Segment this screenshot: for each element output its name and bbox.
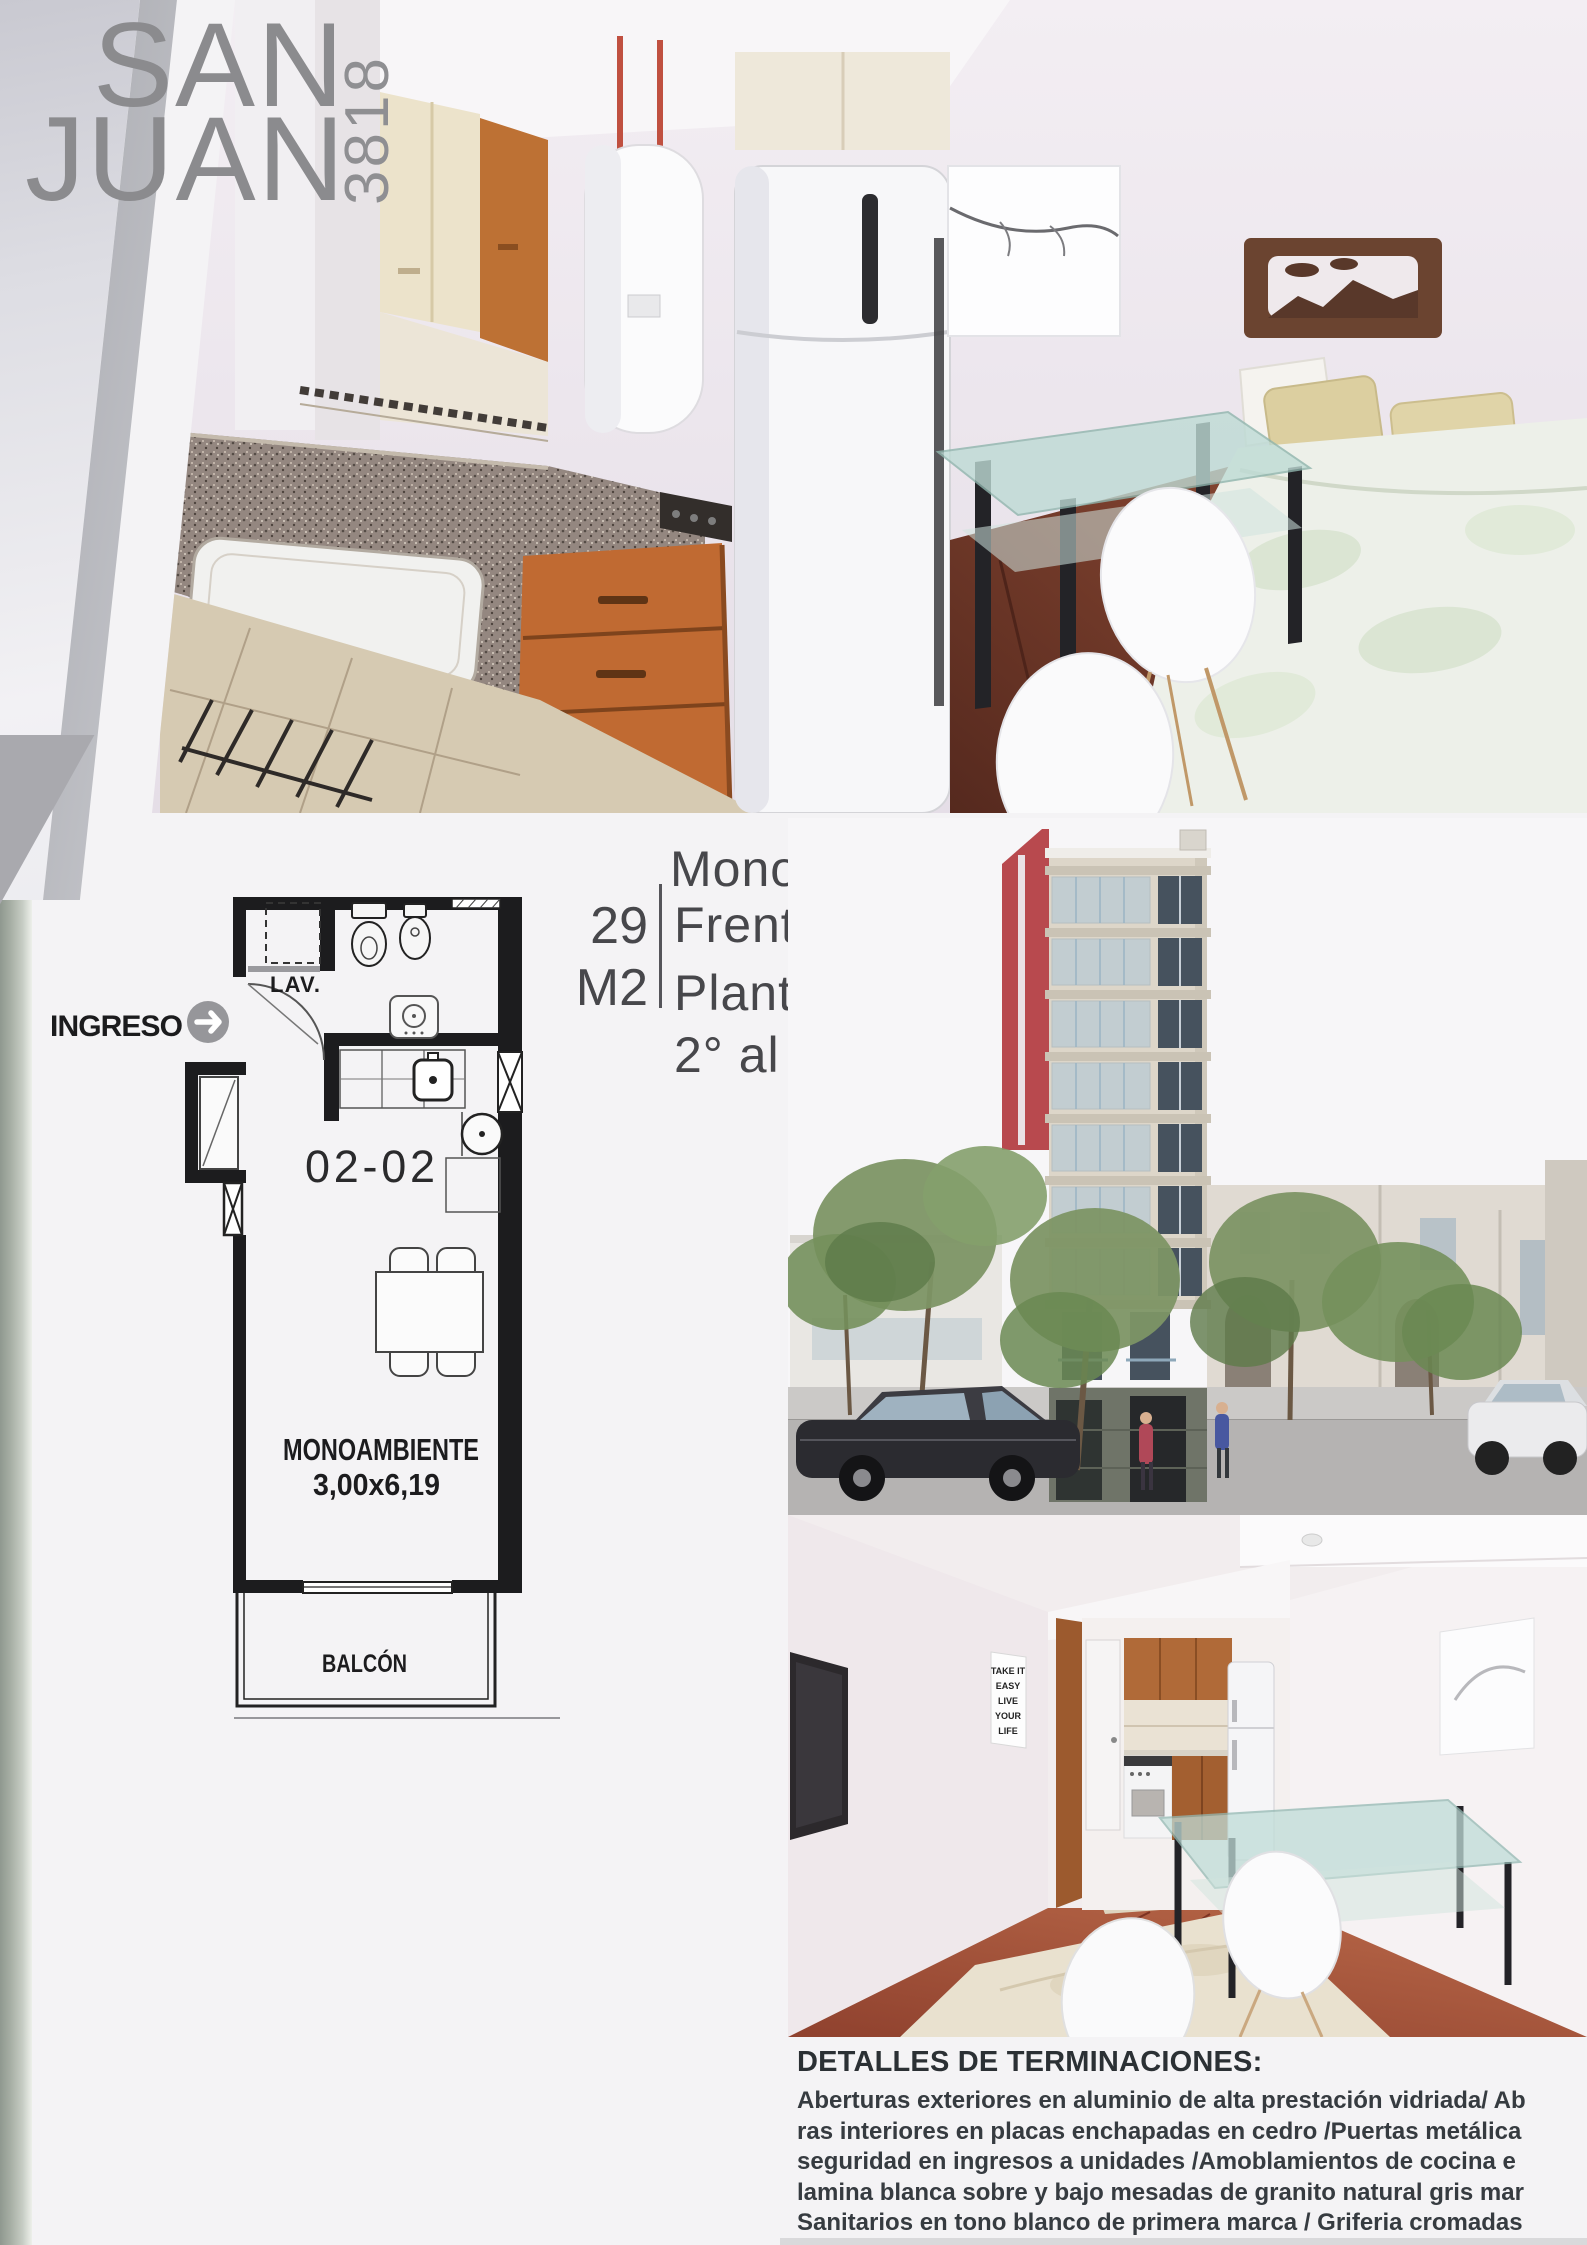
- ingreso-label: INGRESO: [50, 1010, 183, 1043]
- poster-line-4: YOUR: [995, 1711, 1022, 1721]
- room-label: MONOAMBIENTE: [283, 1432, 479, 1467]
- window-left: [224, 1183, 242, 1235]
- finish-details-line: ras interiores en placas enchapadas en c…: [797, 2117, 1585, 2148]
- stove-icon: [414, 1053, 452, 1100]
- laundry-label: LAV.: [270, 972, 320, 997]
- unit-number-label: 02-02: [305, 1141, 438, 1192]
- carved-wood-panel: [1244, 238, 1442, 338]
- scan-edge: [780, 2238, 1587, 2245]
- unit-area-value: 29: [520, 896, 648, 956]
- kitchen-window: [498, 1052, 522, 1112]
- floor-plan: INGRESO LAV. 02-02 MONOAMBIENTE 3,00x6,1…: [40, 880, 580, 1740]
- room-size-label: 3,00x6,19: [313, 1467, 440, 1502]
- above-fridge-cabinet: [735, 52, 950, 150]
- vanity-sink: [390, 996, 438, 1038]
- building-exterior-render: [788, 818, 1587, 1518]
- unit-area-unit: M2: [520, 958, 648, 1018]
- cabinet-plan: [446, 1158, 500, 1212]
- washer-icon: [462, 1112, 502, 1156]
- red-party-wall: [1002, 829, 1049, 1150]
- logo-line2: JUAN: [25, 92, 346, 226]
- fridge: [735, 166, 950, 813]
- wall-canvas-right: [1440, 1618, 1534, 1755]
- closet-door: [200, 1077, 238, 1169]
- finish-details-line: Aberturas exteriores en aluminio de alta…: [797, 2086, 1585, 2117]
- toilet-icon: [352, 903, 386, 966]
- finish-details-block: DETALLES DE TERMINACIONES: Aberturas ext…: [797, 2046, 1585, 2239]
- bath-window: [452, 899, 500, 908]
- poster-line-3: LIVE: [998, 1696, 1018, 1706]
- motivational-poster: TAKE IT EASY LIVE YOUR LIFE: [991, 1652, 1026, 1748]
- poster-line-2: EASY: [996, 1681, 1021, 1691]
- finish-details-line: Sanitarios en tono blanco de primera mar…: [797, 2208, 1585, 2239]
- finish-details-line: lamina blanca sobre y bajo mesadas de gr…: [797, 2178, 1585, 2209]
- balcony-label: BALCÓN: [322, 1648, 407, 1678]
- finish-details-line: seguridad en ingresos a unidades /Amobla…: [797, 2147, 1585, 2178]
- ingreso-arrow-icon: [187, 1001, 229, 1043]
- tv: [790, 1652, 848, 1840]
- dining-set-plan: [376, 1248, 483, 1376]
- interior-render-monoambiente: TAKE IT EASY LIVE YOUR LIFE: [788, 1515, 1587, 2037]
- unit-info-divider: [659, 884, 662, 1008]
- laundry-closet: [248, 903, 320, 972]
- poster-line-5: LIFE: [998, 1726, 1018, 1736]
- poster-line-1: TAKE IT: [991, 1666, 1026, 1676]
- logo: SAN JUAN: [25, 18, 365, 206]
- branch-art-canvas: [948, 166, 1120, 336]
- finish-details-heading: DETALLES DE TERMINACIONES:: [797, 2046, 1585, 2079]
- logo-street-number: 3818: [332, 45, 398, 215]
- bidet-icon: [400, 904, 430, 959]
